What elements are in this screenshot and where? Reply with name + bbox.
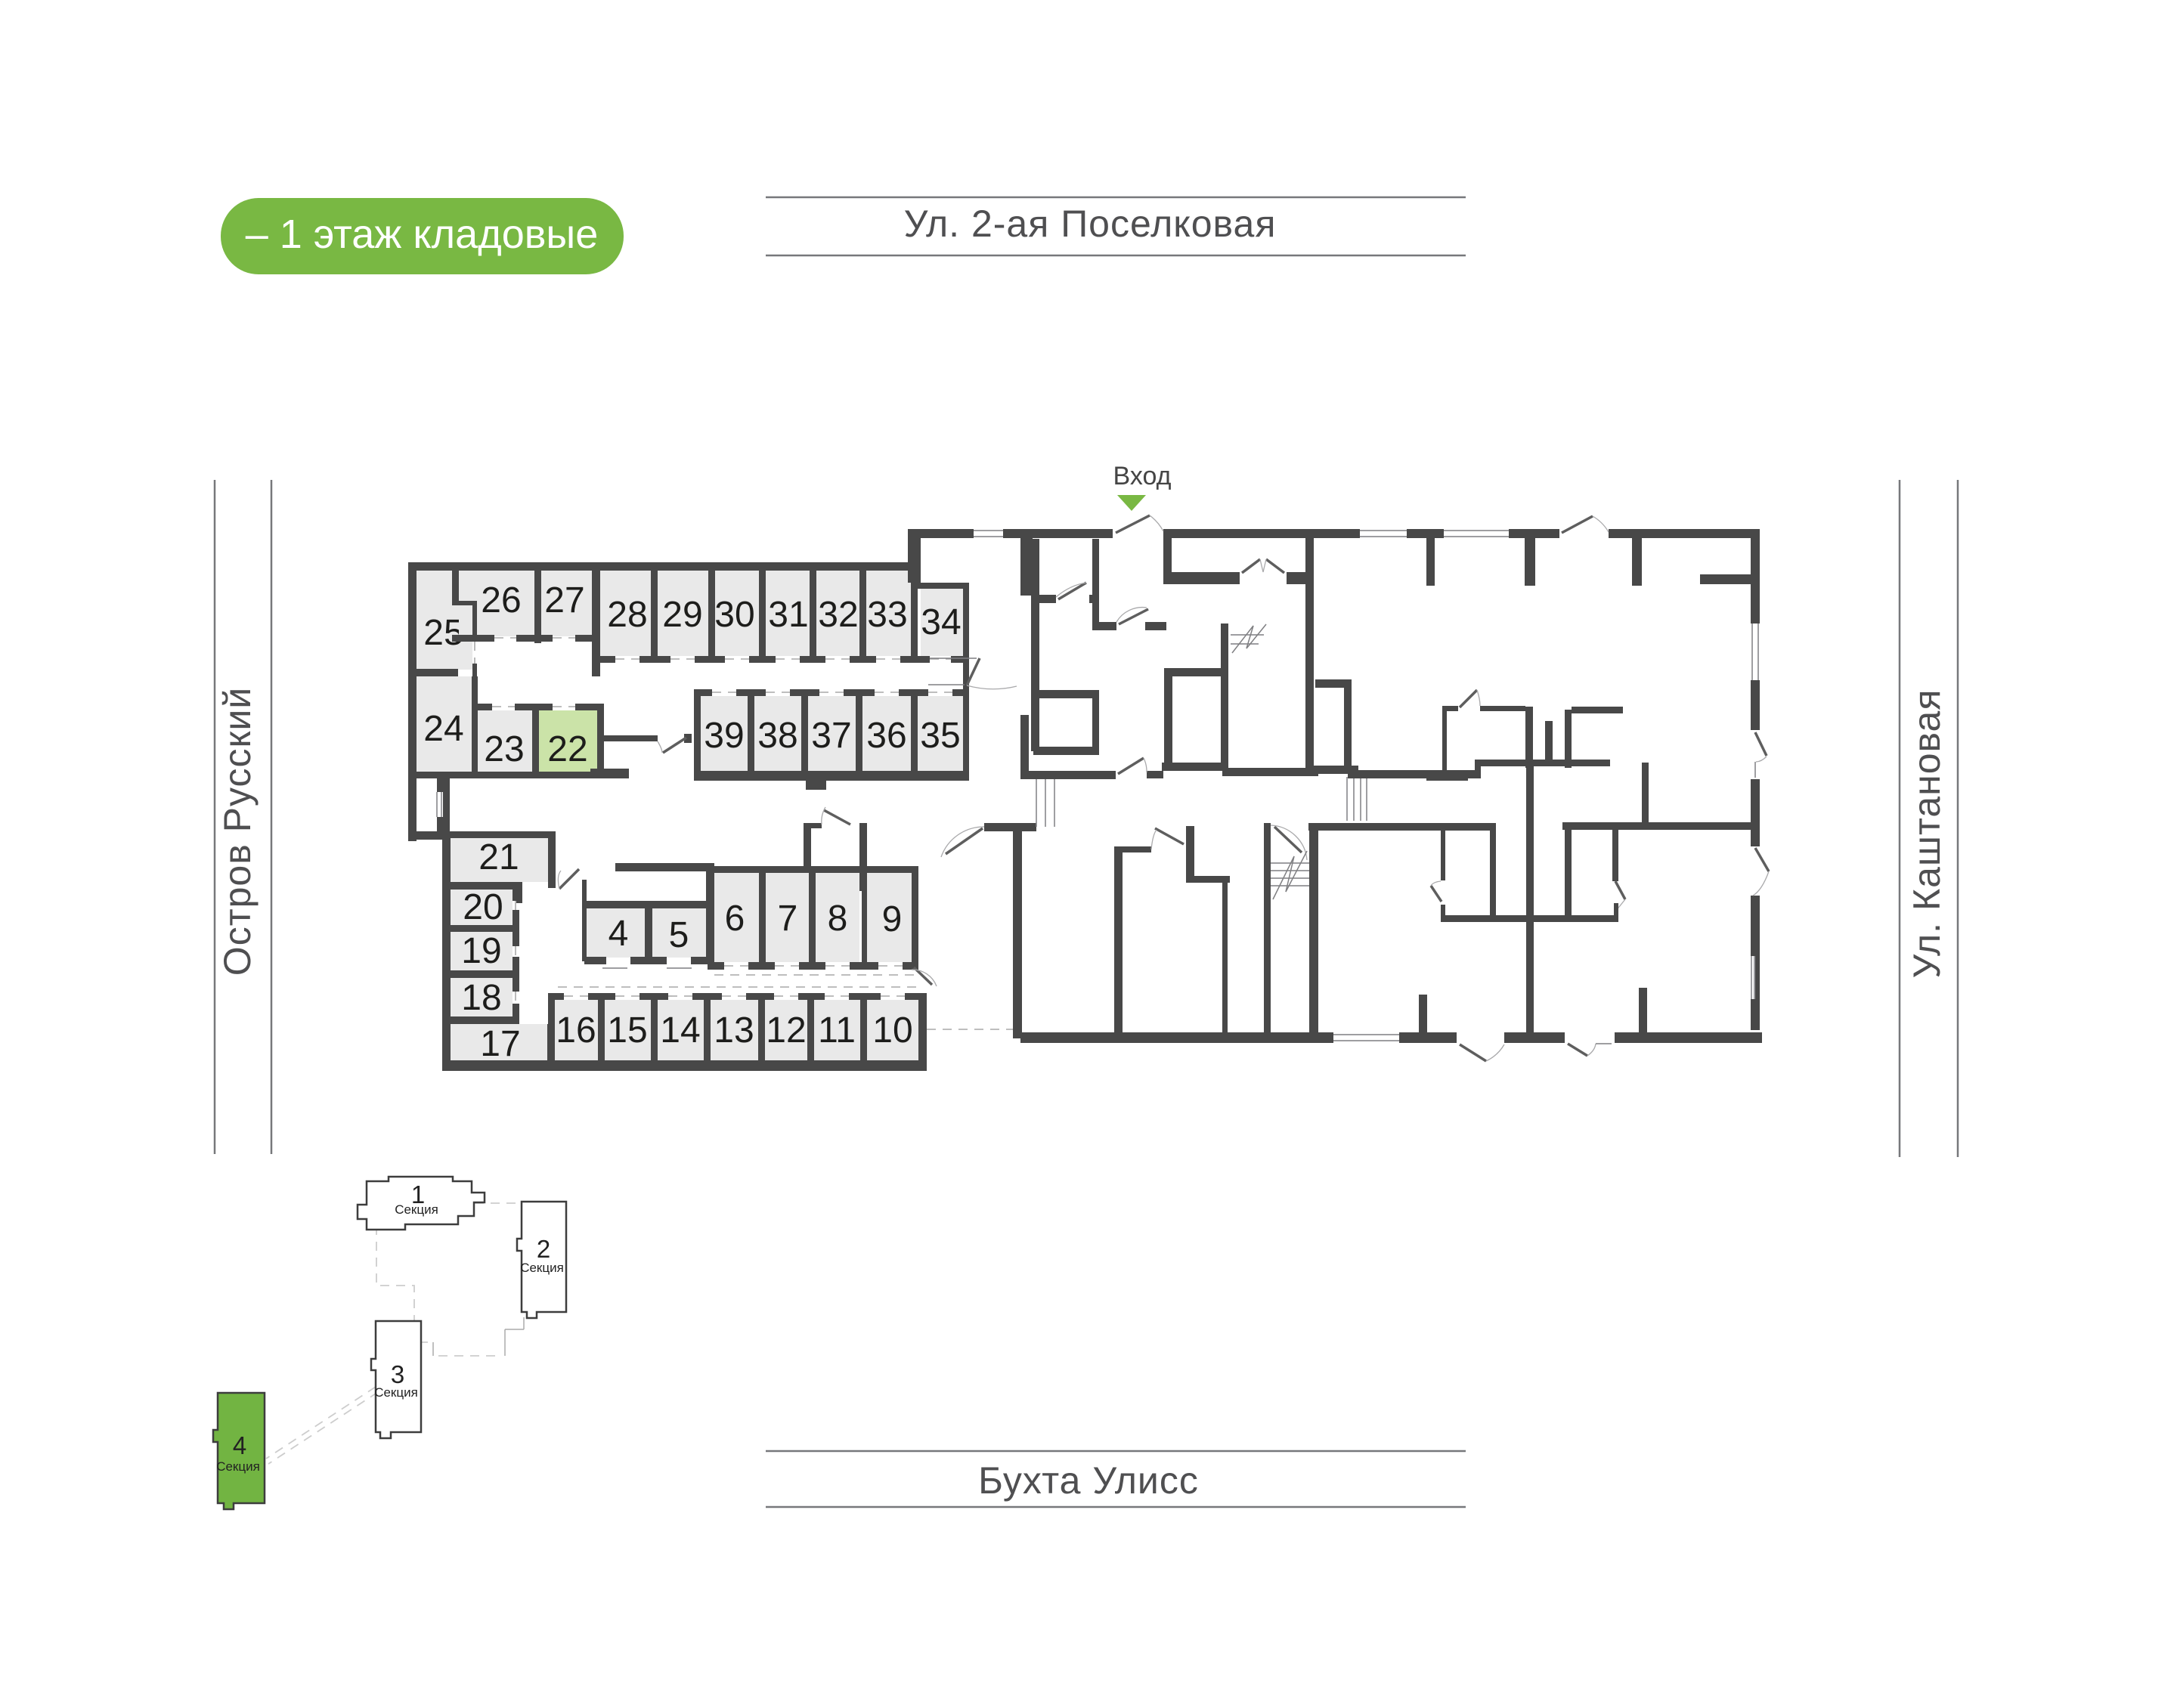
svg-text:26: 26 <box>481 580 521 620</box>
svg-text:24: 24 <box>423 709 463 749</box>
svg-text:17: 17 <box>480 1024 520 1064</box>
svg-text:Остров Русский: Остров Русский <box>216 687 259 976</box>
svg-text:27: 27 <box>544 580 584 620</box>
svg-text:16: 16 <box>556 1010 596 1050</box>
svg-text:12: 12 <box>766 1010 806 1050</box>
svg-text:4: 4 <box>609 914 629 954</box>
svg-text:30: 30 <box>714 595 754 635</box>
svg-text:37: 37 <box>811 716 851 756</box>
svg-text:Секция: Секция <box>395 1202 438 1217</box>
svg-text:31: 31 <box>768 595 808 635</box>
svg-text:39: 39 <box>704 716 744 756</box>
svg-text:14: 14 <box>660 1010 700 1050</box>
svg-text:36: 36 <box>866 716 906 756</box>
svg-text:21: 21 <box>478 837 519 877</box>
svg-text:Секция: Секция <box>520 1261 564 1275</box>
svg-text:13: 13 <box>714 1010 754 1050</box>
svg-text:Вход: Вход <box>1113 462 1172 490</box>
svg-text:22: 22 <box>547 729 587 769</box>
svg-text:18: 18 <box>461 978 501 1018</box>
svg-text:– 1 этаж кладовые: – 1 этаж кладовые <box>246 212 599 257</box>
svg-text:Бухта Улисс: Бухта Улисс <box>978 1459 1199 1502</box>
svg-text:28: 28 <box>607 595 647 635</box>
svg-text:11: 11 <box>818 1010 856 1050</box>
svg-text:34: 34 <box>921 602 961 642</box>
svg-text:3: 3 <box>391 1360 404 1388</box>
svg-text:33: 33 <box>867 595 907 635</box>
svg-text:19: 19 <box>461 931 501 971</box>
svg-text:10: 10 <box>872 1010 912 1050</box>
svg-text:29: 29 <box>662 595 702 635</box>
svg-text:25: 25 <box>423 613 463 653</box>
svg-text:20: 20 <box>463 887 503 927</box>
svg-text:38: 38 <box>757 716 797 756</box>
svg-text:8: 8 <box>828 899 848 939</box>
svg-text:35: 35 <box>920 716 960 756</box>
svg-text:4: 4 <box>233 1431 246 1459</box>
svg-text:6: 6 <box>725 899 745 939</box>
svg-text:23: 23 <box>484 729 524 769</box>
svg-text:15: 15 <box>607 1010 647 1050</box>
svg-text:32: 32 <box>818 595 858 635</box>
svg-text:Секция: Секция <box>216 1459 260 1474</box>
svg-text:Ул. 2-ая Поселковая: Ул. 2-ая Поселковая <box>904 203 1277 245</box>
svg-text:Ул. Каштановая: Ул. Каштановая <box>1906 689 1948 979</box>
svg-text:9: 9 <box>882 899 903 939</box>
svg-text:7: 7 <box>778 899 798 939</box>
svg-text:2: 2 <box>537 1235 550 1263</box>
svg-text:Секция: Секция <box>374 1385 418 1400</box>
svg-text:5: 5 <box>669 915 689 955</box>
